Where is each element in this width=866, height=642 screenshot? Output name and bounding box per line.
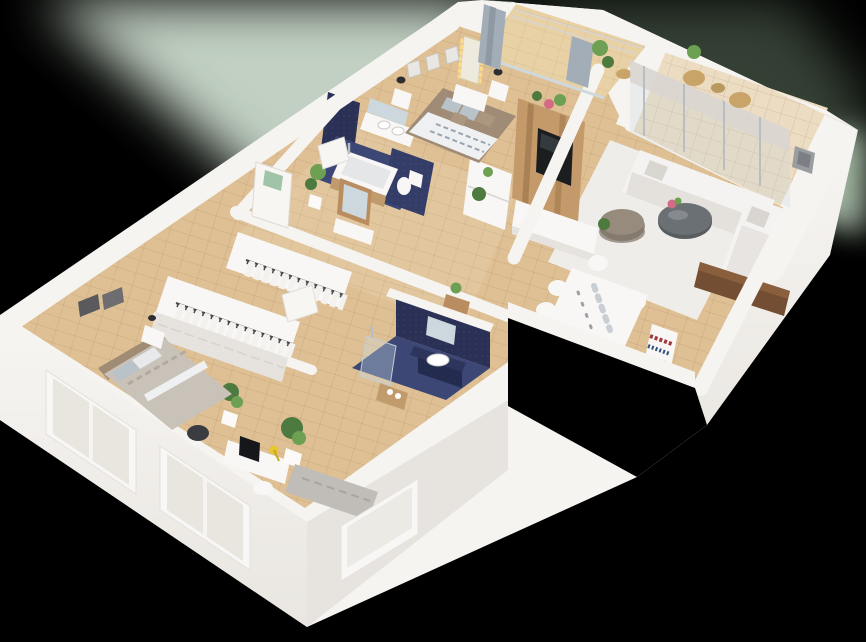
- coffee-table-reflection: [668, 210, 688, 220]
- floorplan-render: [0, 0, 866, 642]
- tv-wall-flowers: [544, 99, 554, 109]
- entry-plant: [305, 178, 317, 190]
- front-door: [252, 162, 292, 228]
- basin: [392, 127, 404, 135]
- wicker-chair: [683, 70, 705, 86]
- balcony-plant: [687, 45, 701, 59]
- tv-wall-plant: [554, 94, 566, 106]
- table-lamp: [494, 69, 503, 76]
- table-lamp: [397, 77, 406, 84]
- bed2-lamp: [148, 315, 156, 321]
- towels: [387, 389, 393, 395]
- floorplan-stage: [0, 0, 866, 642]
- console-plant: [451, 283, 462, 294]
- dresser-plant: [472, 187, 486, 201]
- basin: [378, 121, 390, 129]
- balcony-plant: [592, 40, 608, 56]
- towels: [395, 393, 401, 399]
- flower-leaves: [675, 198, 682, 205]
- coffee-table-top: [658, 203, 712, 235]
- bath2-basin: [427, 354, 449, 366]
- dining-chair: [588, 255, 608, 271]
- bistro-table: [711, 83, 725, 93]
- wicker-chair: [729, 92, 751, 108]
- dresser-plant: [483, 167, 493, 177]
- tv-wall-plant: [532, 91, 542, 101]
- desk-chair-dark: [187, 425, 209, 441]
- side-chair: [253, 481, 273, 495]
- hall-plant: [231, 396, 243, 408]
- console-plant: [598, 218, 610, 230]
- balcony-plant: [602, 56, 614, 68]
- balcony-side-table: [616, 69, 632, 79]
- bedroom2-plant: [292, 431, 306, 445]
